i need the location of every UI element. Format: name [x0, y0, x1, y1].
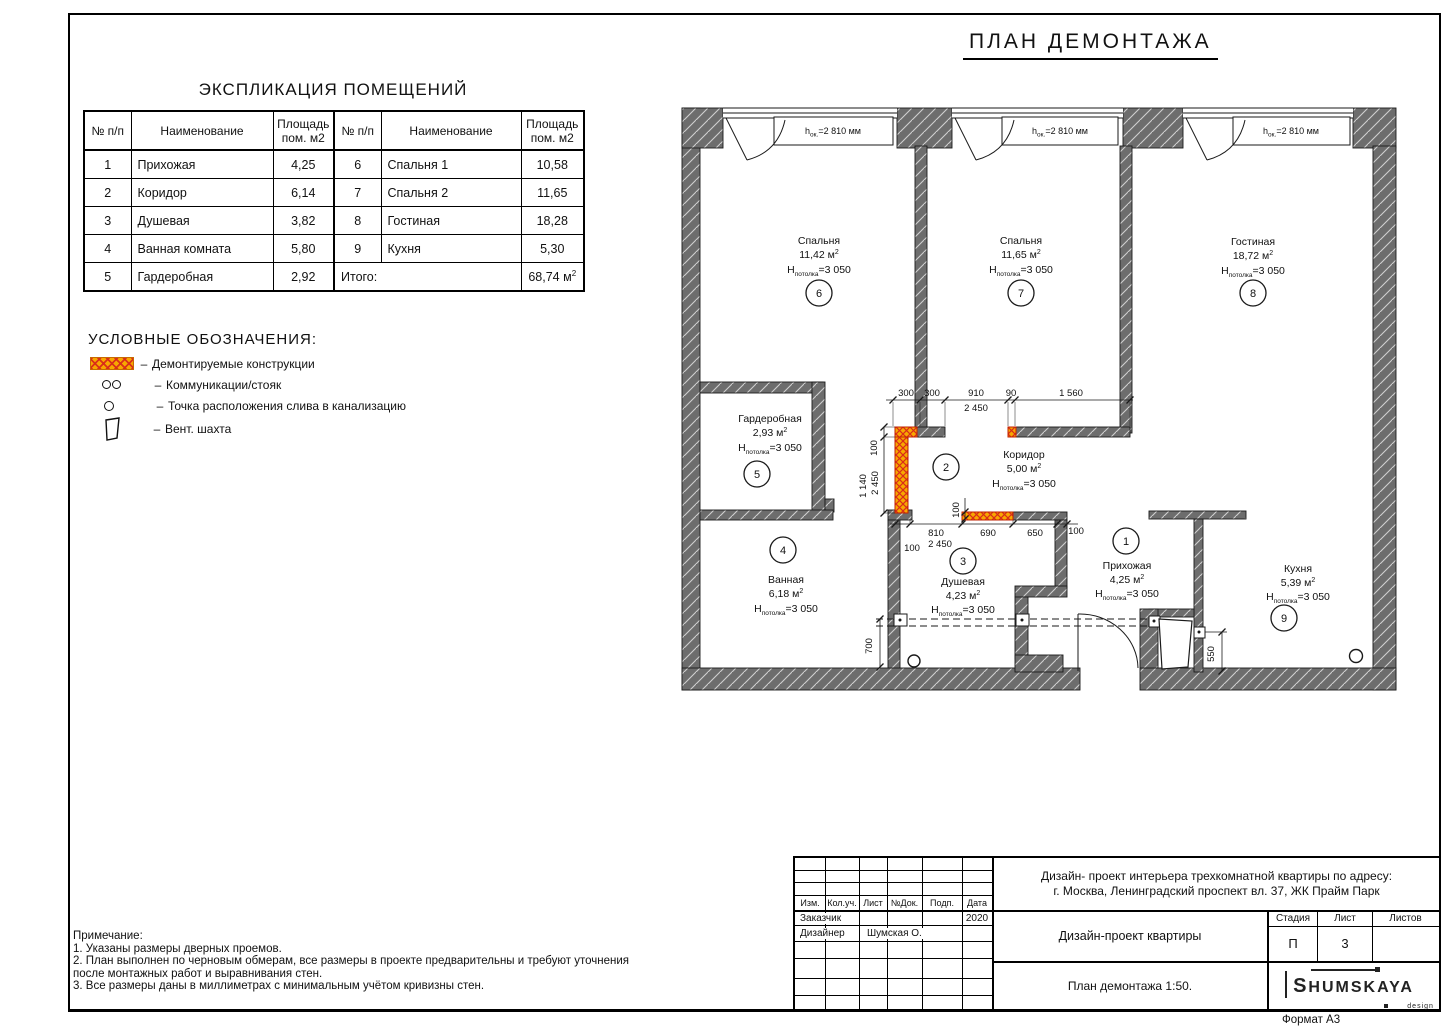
- cell: 2,92: [273, 263, 334, 292]
- entrance-door: [1078, 614, 1138, 671]
- dim-label: 650: [1027, 528, 1043, 539]
- cell: Гостиная: [381, 207, 521, 235]
- svg-text:9: 9: [1281, 613, 1287, 625]
- svg-text:5: 5: [754, 469, 760, 481]
- designer-name: Шумская О.: [865, 928, 924, 939]
- col-header: Наименование: [381, 111, 521, 150]
- dim-label: 100: [904, 543, 920, 554]
- dim-label: 100: [951, 502, 962, 518]
- dim-label: 1 140: [858, 474, 869, 498]
- cell: 1: [84, 150, 131, 179]
- cell: Коридор: [131, 179, 273, 207]
- vent-shaft-icon: [1159, 619, 1192, 669]
- cell: Душевая: [131, 207, 273, 235]
- cell: Кухня: [381, 235, 521, 263]
- dim-label: 910: [968, 388, 984, 399]
- dim-label: 690: [980, 528, 996, 539]
- cell: 10,58: [521, 150, 584, 179]
- project-line2: г. Москва, Ленинградский проспект вл. 37…: [1041, 884, 1392, 899]
- logo-text: HUMSKAYA: [1308, 979, 1414, 996]
- stamp-col-list: Лист: [859, 896, 887, 910]
- cell: 4: [84, 235, 131, 263]
- cell: 5,80: [273, 235, 334, 263]
- sup: 2: [572, 269, 576, 278]
- logo: SHUMSKAYA design: [1269, 963, 1438, 1009]
- stamp-col-podp: Подп.: [922, 896, 962, 910]
- room-label-corridor: 2 Коридор 5,00 м2 Hпотолка=3 050: [933, 449, 1056, 492]
- svg-text:2,93 м2: 2,93 м2: [753, 427, 788, 439]
- svg-text:18,72 м2: 18,72 м2: [1233, 250, 1273, 262]
- sheet-label: Лист: [1318, 911, 1372, 926]
- svg-text:Прихожая: Прихожая: [1103, 560, 1152, 572]
- cell: 9: [334, 235, 381, 263]
- svg-text:Спальня: Спальня: [798, 235, 840, 247]
- dim-label: 2 450: [964, 403, 988, 414]
- col-header: Площадь пом. м2: [273, 111, 334, 150]
- dash: –: [136, 357, 152, 371]
- window: hок.=2 810 мм: [1183, 106, 1353, 160]
- legend-title: УСЛОВНЫЕ ОБОЗНАЧЕНИЯ:: [88, 331, 317, 348]
- svg-text:3: 3: [960, 556, 966, 568]
- cell: Прихожая: [131, 150, 273, 179]
- note-line: 1. Указаны размеры дверных проемов.: [73, 943, 713, 956]
- dim-label: 700: [864, 638, 875, 654]
- total-label: Итого:: [334, 263, 521, 292]
- title-block: Изм. Кол.уч. Лист №Док. Подп. Дата Заказ…: [793, 856, 1441, 1012]
- explication-title: ЭКСПЛИКАЦИЯ ПОМЕЩЕНИЙ: [83, 80, 583, 100]
- legend-label: Вент. шахта: [165, 422, 231, 436]
- floor-plan: hок.=2 810 мм hок.=2 810 мм hок.=2 810 м…: [660, 95, 1420, 705]
- stage-value: П: [1269, 927, 1317, 960]
- project-description: Дизайн- проект интерьера трехкомнатной к…: [995, 860, 1438, 908]
- dim-label: 1 560: [1059, 388, 1083, 399]
- svg-text:Hпотолка=3 050: Hпотолка=3 050: [992, 478, 1056, 492]
- svg-text:Кухня: Кухня: [1284, 563, 1312, 575]
- total-value: 68,74 м2: [521, 263, 584, 292]
- svg-text:7: 7: [1018, 288, 1024, 300]
- cell: Ванная комната: [131, 235, 273, 263]
- cell: Спальня 2: [381, 179, 521, 207]
- dim-label: 100: [1068, 526, 1084, 537]
- dim-label: 90: [1006, 388, 1017, 399]
- col-header: Наименование: [131, 111, 273, 150]
- svg-text:5,39 м2: 5,39 м2: [1281, 577, 1316, 589]
- dim-label: 2 450: [870, 471, 881, 495]
- cell: 5,30: [521, 235, 584, 263]
- room-label-living: Гостиная 18,72 м2 Hпотолка=3 050 8: [1221, 236, 1285, 306]
- svg-text:Ванная: Ванная: [768, 574, 804, 586]
- designer-label: Дизайнер: [798, 928, 847, 939]
- svg-text:8: 8: [1250, 288, 1256, 300]
- svg-text:Hпотолка=3 050: Hпотолка=3 050: [738, 442, 802, 456]
- cell: Спальня 1: [381, 150, 521, 179]
- stamp-col-izm: Изм.: [795, 896, 825, 910]
- dim-label: 300: [898, 388, 914, 399]
- table-row: 2 Коридор 6,14 7 Спальня 2 11,65: [84, 179, 584, 207]
- svg-text:4,23 м2: 4,23 м2: [946, 590, 981, 602]
- sheets-label: Листов: [1373, 911, 1438, 926]
- vent-shaft-icon: [88, 417, 149, 441]
- room-label-bath: 4 Ванная 6,18 м2 Hпотолка=3 050: [754, 537, 818, 617]
- dash: –: [149, 422, 165, 436]
- cell: 6,14: [273, 179, 334, 207]
- table-row: 5 Гардеробная 2,92 Итого: 68,74 м2: [84, 263, 584, 292]
- cell: 8: [334, 207, 381, 235]
- cell: 18,28: [521, 207, 584, 235]
- format-label: Формат А3: [1282, 1014, 1340, 1026]
- svg-text:Hпотолка=3 050: Hпотолка=3 050: [931, 604, 995, 618]
- logo-sub: design: [1407, 1003, 1434, 1010]
- window: hок.=2 810 мм: [723, 106, 897, 160]
- cell: 7: [334, 179, 381, 207]
- table-row: 3 Душевая 3,82 8 Гостиная 18,28: [84, 207, 584, 235]
- cell: 6: [334, 150, 381, 179]
- stamp-col-koluch: Кол.уч.: [825, 896, 859, 910]
- svg-text:11,42 м2: 11,42 м2: [799, 249, 839, 261]
- legend-item: – Демонтируемые конструкции: [88, 353, 508, 374]
- dash: –: [152, 399, 168, 413]
- svg-text:Гардеробная: Гардеробная: [738, 413, 802, 425]
- total-number: 68,74 м: [528, 270, 571, 284]
- stage-label: Стадия: [1269, 911, 1317, 926]
- sheets-value: [1373, 927, 1438, 960]
- explication-table: № п/п Наименование Площадь пом. м2 № п/п…: [83, 110, 585, 292]
- window: hок.=2 810 мм: [952, 106, 1123, 160]
- table-row: 1 Прихожая 4,25 6 Спальня 1 10,58: [84, 150, 584, 179]
- room-label-hall: 1 Прихожая 4,25 м2 Hпотолка=3 050: [1095, 528, 1159, 602]
- svg-text:2: 2: [943, 462, 949, 474]
- stamp-col-data: Дата: [962, 896, 992, 910]
- cell: 5: [84, 263, 131, 292]
- table-row: 4 Ванная комната 5,80 9 Кухня 5,30: [84, 235, 584, 263]
- note-line: 3. Все размеры даны в миллиметрах с мини…: [73, 980, 713, 993]
- notes-title: Примечание:: [73, 930, 713, 943]
- dim-label: 100: [869, 440, 880, 456]
- svg-text:4,25 м2: 4,25 м2: [1110, 574, 1145, 586]
- cell: 11,65: [521, 179, 584, 207]
- legend-label: Коммуникации/стояк: [166, 378, 281, 392]
- svg-text:6,18 м2: 6,18 м2: [769, 588, 804, 600]
- col-header: № п/п: [84, 111, 131, 150]
- svg-text:Hпотолка=3 050: Hпотолка=3 050: [989, 264, 1053, 278]
- col-header: Площадь пом. м2: [521, 111, 584, 150]
- doc-title: Дизайн-проект квартиры: [995, 912, 1265, 960]
- svg-text:6: 6: [816, 288, 822, 300]
- svg-text:Hпотолка=3 050: Hпотолка=3 050: [1095, 588, 1159, 602]
- sheet-value: 3: [1318, 927, 1372, 960]
- room-label-bedroom2: Спальня 11,65 м2 Hпотолка=3 050 7: [989, 235, 1053, 306]
- drain-point-icon: [908, 655, 920, 667]
- page-title: ПЛАН ДЕМОНТАЖА: [963, 30, 1218, 60]
- svg-text:Душевая: Душевая: [941, 576, 985, 588]
- room-label-wardrobe: Гардеробная 2,93 м2 Hпотолка=3 050 5: [738, 413, 802, 487]
- room-label-bedroom1: Спальня 11,42 м2 Hпотолка=3 050 6: [787, 235, 851, 306]
- demolition-hatch-icon: [90, 357, 134, 370]
- dim-label: 550: [1206, 646, 1217, 662]
- legend-item: – Точка расположения слива в канализацию: [88, 395, 508, 416]
- svg-text:Hпотолка=3 050: Hпотолка=3 050: [1266, 591, 1330, 605]
- drain-point-icon: [1350, 650, 1363, 663]
- svg-text:Hпотолка=3 050: Hпотолка=3 050: [787, 264, 851, 278]
- cell: 4,25: [273, 150, 334, 179]
- svg-text:11,65 м2: 11,65 м2: [1001, 249, 1041, 261]
- svg-text:5,00 м2: 5,00 м2: [1007, 463, 1042, 475]
- note-line: 2. План выполнен по черновым обмерам, вс…: [73, 955, 713, 968]
- room-label-kitchen: Кухня 5,39 м2 Hпотолка=3 050 9: [1266, 563, 1330, 631]
- stamp-col-ndok: №Док.: [887, 896, 922, 910]
- col-header: № п/п: [334, 111, 381, 150]
- drain-point-icon: [88, 401, 152, 411]
- logo-initial: S: [1293, 975, 1308, 997]
- svg-text:Hпотолка=3 050: Hпотолка=3 050: [754, 603, 818, 617]
- riser-icon: [88, 380, 150, 389]
- cell: 3: [84, 207, 131, 235]
- legend-label: Демонтируемые конструкции: [152, 357, 315, 371]
- svg-text:1: 1: [1123, 536, 1129, 548]
- sheet-title: План демонтажа 1:50.: [995, 963, 1265, 1009]
- customer-year: 2020: [962, 912, 992, 925]
- windows: hок.=2 810 мм hок.=2 810 мм hок.=2 810 м…: [723, 106, 1353, 160]
- project-line1: Дизайн- проект интерьера трехкомнатной к…: [1041, 869, 1392, 884]
- dim-label: 2 450: [928, 539, 952, 550]
- svg-text:Hпотолка=3 050: Hпотолка=3 050: [1221, 265, 1285, 279]
- cell: 3,82: [273, 207, 334, 235]
- dim-label: 810: [928, 528, 944, 539]
- svg-text:Гостиная: Гостиная: [1231, 236, 1275, 248]
- room-label-shower: 3 Душевая 4,23 м2 Hпотолка=3 050: [931, 548, 995, 618]
- dash: –: [150, 378, 166, 392]
- legend-item: – Вент. шахта: [88, 416, 508, 442]
- svg-text:Коридор: Коридор: [1003, 449, 1045, 461]
- cell: 2: [84, 179, 131, 207]
- legend-item: – Коммуникации/стояк: [88, 374, 508, 395]
- legend-label: Точка расположения слива в канализацию: [168, 399, 406, 413]
- svg-text:Спальня: Спальня: [1000, 235, 1042, 247]
- dim-label: 300: [924, 388, 940, 399]
- cell: Гардеробная: [131, 263, 273, 292]
- legend: – Демонтируемые конструкции – Коммуникац…: [88, 353, 508, 442]
- note-line: после монтажных работ и выравнивания сте…: [73, 968, 713, 981]
- notes: Примечание: 1. Указаны размеры дверных п…: [73, 930, 713, 993]
- table-header-row: № п/п Наименование Площадь пом. м2 № п/п…: [84, 111, 584, 150]
- customer-label: Заказчик: [798, 913, 843, 924]
- svg-text:4: 4: [780, 545, 786, 557]
